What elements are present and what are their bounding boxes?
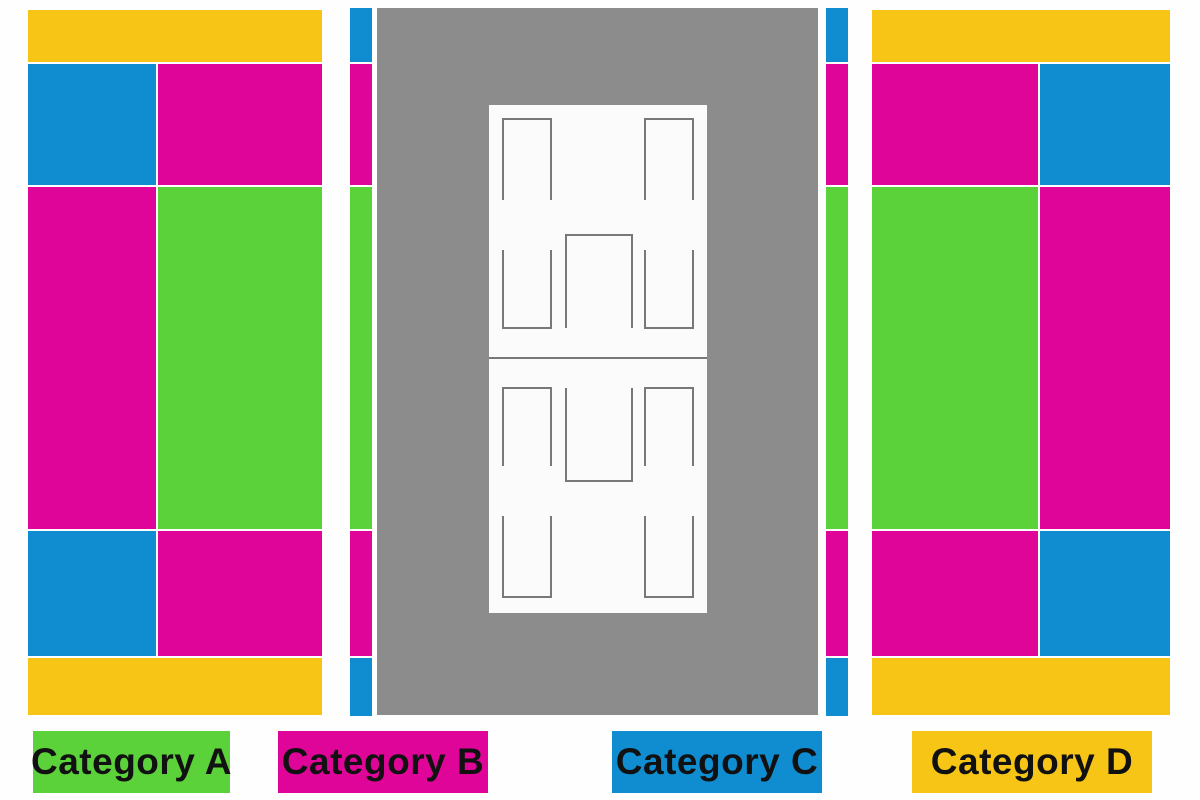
seat-block-left-upper-inner[interactable]: [158, 64, 322, 185]
seat-block-right-upper-outer[interactable]: [1040, 64, 1170, 185]
seat-block-left-lower-inner[interactable]: [158, 531, 322, 656]
legend-category-d: Category D: [912, 731, 1152, 793]
seat-block-left-middle-outer[interactable]: [28, 187, 156, 529]
seating-map: Category A Category B Category C Categor…: [0, 0, 1200, 800]
left-stand: [28, 10, 322, 715]
seat-block-strip-left-middle[interactable]: [350, 187, 372, 529]
seat-block-strip-right-middle[interactable]: [826, 187, 848, 529]
seat-block-right-upper-inner[interactable]: [872, 64, 1038, 185]
legend-category-b-label: Category B: [282, 741, 484, 783]
seat-block-left-top-bar[interactable]: [28, 10, 322, 62]
seat-block-right-middle-outer[interactable]: [1040, 187, 1170, 529]
seat-block-left-middle-inner[interactable]: [158, 187, 322, 529]
seat-block-strip-right-lower[interactable]: [826, 531, 848, 656]
seat-block-strip-right-upper[interactable]: [826, 64, 848, 185]
legend-category-b: Category B: [278, 731, 488, 793]
seat-block-strip-left-top[interactable]: [350, 8, 372, 62]
seat-block-strip-left-bottom[interactable]: [350, 658, 372, 716]
seat-block-right-top-bar[interactable]: [872, 10, 1170, 62]
court-diagram: [377, 8, 818, 715]
legend-category-a: Category A: [33, 731, 230, 793]
seat-block-strip-left-lower[interactable]: [350, 531, 372, 656]
court-area: [377, 8, 818, 715]
seat-block-left-upper-outer[interactable]: [28, 64, 156, 185]
courtside-left-strip: [350, 8, 372, 716]
seat-block-right-lower-outer[interactable]: [1040, 531, 1170, 656]
seat-block-strip-right-bottom[interactable]: [826, 658, 848, 716]
seat-block-left-bottom-bar[interactable]: [28, 658, 322, 715]
legend-category-c-label: Category C: [616, 741, 818, 783]
seat-block-right-bottom-bar[interactable]: [872, 658, 1170, 715]
seat-block-left-lower-outer[interactable]: [28, 531, 156, 656]
legend-category-a-label: Category A: [31, 741, 232, 783]
seat-block-right-middle-inner[interactable]: [872, 187, 1038, 529]
legend-category-c: Category C: [612, 731, 822, 793]
right-stand: [872, 10, 1170, 715]
seat-block-right-lower-inner[interactable]: [872, 531, 1038, 656]
legend-category-d-label: Category D: [931, 741, 1133, 783]
courtside-right-strip: [826, 8, 848, 716]
seat-block-strip-right-top[interactable]: [826, 8, 848, 62]
seat-block-strip-left-upper[interactable]: [350, 64, 372, 185]
